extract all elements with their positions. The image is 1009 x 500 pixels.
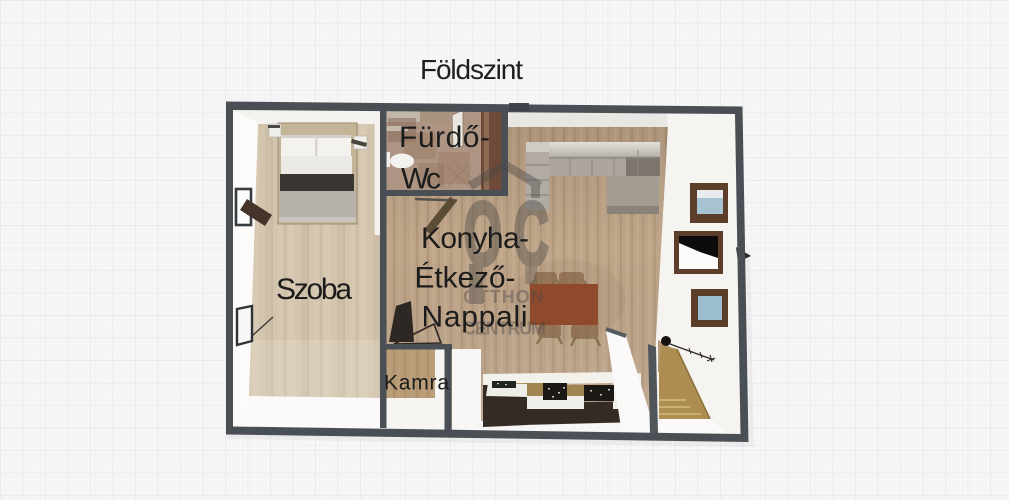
svg-text:Kamra: Kamra bbox=[384, 372, 449, 395]
svg-text:Étkező-: Étkező- bbox=[415, 262, 516, 295]
svg-text:Wc: Wc bbox=[401, 163, 441, 196]
svg-text:Fürdő-: Fürdő- bbox=[399, 121, 490, 154]
svg-text:Konyha-: Konyha- bbox=[421, 222, 529, 255]
svg-text:Földszint: Földszint bbox=[420, 54, 523, 85]
svg-text:Nappali: Nappali bbox=[422, 301, 528, 334]
svg-text:Szoba: Szoba bbox=[276, 273, 352, 306]
